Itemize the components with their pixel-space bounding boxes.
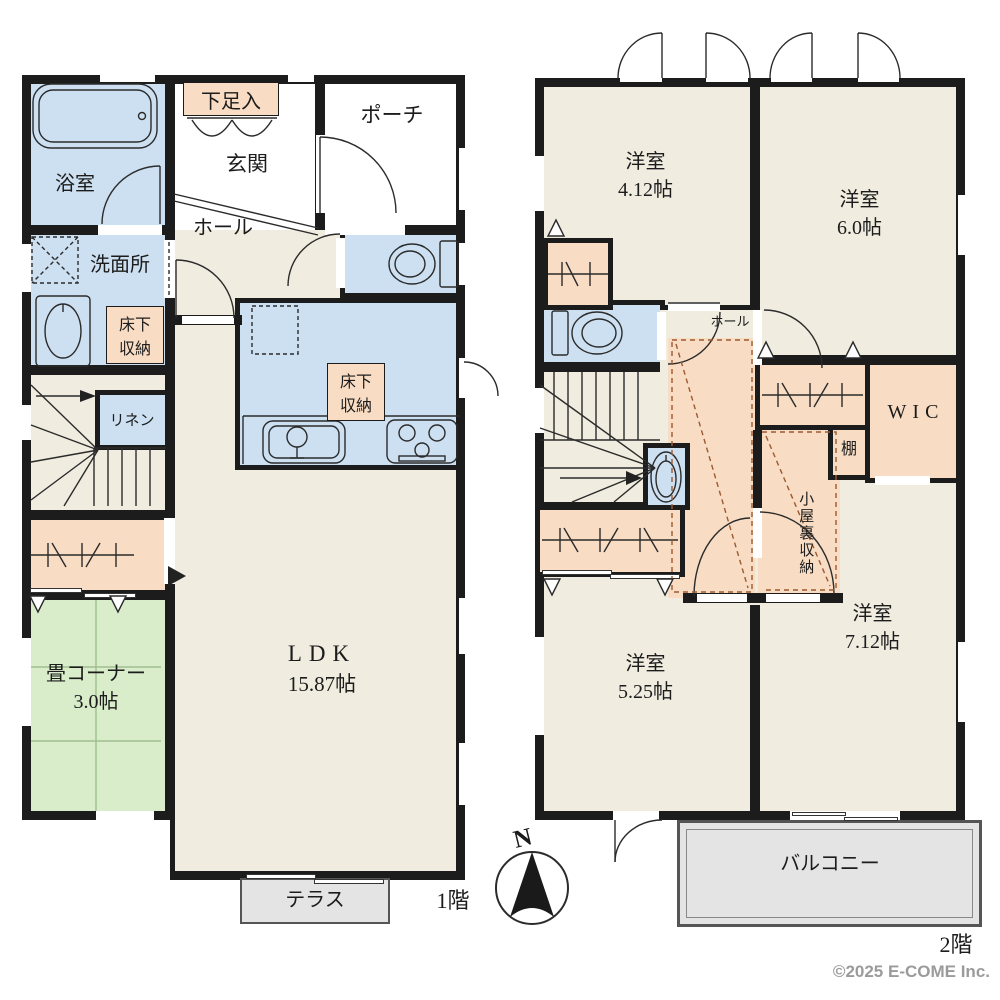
window-2f-top-4 [858,73,899,82]
compass-icon [496,852,568,924]
opening-toilet-2f-door [657,312,666,360]
room-ne-name-label: 洋室 [807,188,912,212]
copyright: ©2025 E-COME Inc. [740,962,990,983]
closet-1f-slider-1 [30,588,82,593]
room-toilet-1f [340,230,465,298]
wic-label: WIC [872,400,960,424]
window-2f-top-3 [771,73,812,82]
opening-toilet-1f-door [336,238,345,288]
opening-room-nw-door [668,302,720,311]
closet-1f-slider-2 [84,593,136,598]
room-nw-size-label: 4.12帖 [593,178,698,202]
window-2f-top-2 [706,73,748,82]
balcony-slider-2 [844,817,898,821]
window-2f-left-3 [534,637,544,735]
ldk-name-label: LDK [242,640,402,668]
terrace-slider-2 [314,879,384,884]
floor2-label: 2階 [925,932,987,959]
opening-room-se-door [766,594,820,602]
window-ldk-right-1 [459,598,468,654]
window-2f-right-1 [958,195,967,255]
closet-2f-s-slider-1 [542,570,612,575]
entrance-label: 玄関 [205,152,289,178]
room-se-size-label: 7.12帖 [820,630,925,654]
washroom-label: 洗面所 [76,253,164,277]
window-tatami-bottom [96,811,154,820]
balcony-label: バルコニー [770,852,890,876]
opening-closet-1f [164,518,175,584]
opening-hall-ldk [182,316,234,324]
balcony-slider-1 [792,812,846,816]
tatami-size-label: 3.0帖 [28,690,164,714]
room-sw-size-label: 5.25帖 [593,680,698,704]
shoe-storage-label: 下足入 [201,85,261,114]
opening-bath-door [98,225,162,235]
terrace-label: テラス [240,888,390,912]
opening-room-sw-door [697,594,747,602]
shelf-label: 棚 [832,440,866,460]
tatami-name-label: 畳コーナー [28,662,164,686]
closet-2f-west [543,238,613,310]
window-bath-top [100,73,155,82]
underfloor-storage-washroom-label: 床下収納 [118,311,152,359]
room-toilet-2f [535,300,665,367]
room-bathroom [22,75,170,230]
opening-porch-south [325,225,405,235]
attic-storage-label: 小屋裏収納 [796,472,814,594]
opening-wic-door [875,476,930,485]
underfloor-storage-washroom-box: 床下収納 [106,306,164,364]
window-stair-left [21,405,31,440]
porch-label: ポーチ [348,103,436,129]
back-door-arc [464,362,498,396]
room-sw-name-label: 洋室 [593,652,698,676]
window-arc-1 [618,33,662,78]
closet-2f-east [755,360,870,430]
opening-washroom-slide [164,240,175,298]
closet-2f-south [535,505,685,577]
basin-cell-2f [643,443,690,510]
room-closet-1f [22,515,170,595]
balcony-door-arc [615,820,662,862]
wall-corridor-left [753,430,762,510]
hall-1f-label: ホール [183,216,263,240]
opening-corridor-door [753,508,762,558]
floor-plan: 下足入 [0,0,1000,1000]
ldk-size-label: 15.87帖 [242,672,402,698]
room-se-name-label: 洋室 [820,602,925,626]
opening-back-door [459,358,468,398]
bath-label: 浴室 [35,172,115,196]
underfloor-storage-kitchen-label: 床下収納 [339,368,373,416]
terrace-slider-1 [246,874,316,879]
window-arc-3 [770,33,812,78]
shoe-storage-box: 下足入 [183,82,279,116]
window-arc-4 [858,33,900,78]
window-ldk-right-2 [459,743,468,805]
floor1-label: 1階 [418,888,488,915]
window-washroom-left [21,244,31,292]
window-arc-2 [706,33,750,78]
window-toilet-1f [459,243,468,285]
room-ne-size-label: 6.0帖 [807,216,912,240]
opening-front-door [316,135,327,213]
opening-balcony-door [613,811,659,820]
opening-porch-right [459,148,468,210]
window-entrance-top [288,73,314,82]
compass-north-label: N [503,820,543,858]
window-2f-right-2 [958,642,967,722]
hall-2f-label: ホール [702,314,758,330]
window-2f-top-1 [620,73,662,82]
closet-2f-s-slider-2 [610,574,680,579]
underfloor-storage-kitchen-box: 床下収納 [327,363,385,421]
room-nw-name-label: 洋室 [593,150,698,174]
linen-label: リネン [98,412,166,430]
room-porch [320,75,465,230]
window-2f-left-1 [534,156,544,211]
window-2f-left-2 [534,388,544,433]
